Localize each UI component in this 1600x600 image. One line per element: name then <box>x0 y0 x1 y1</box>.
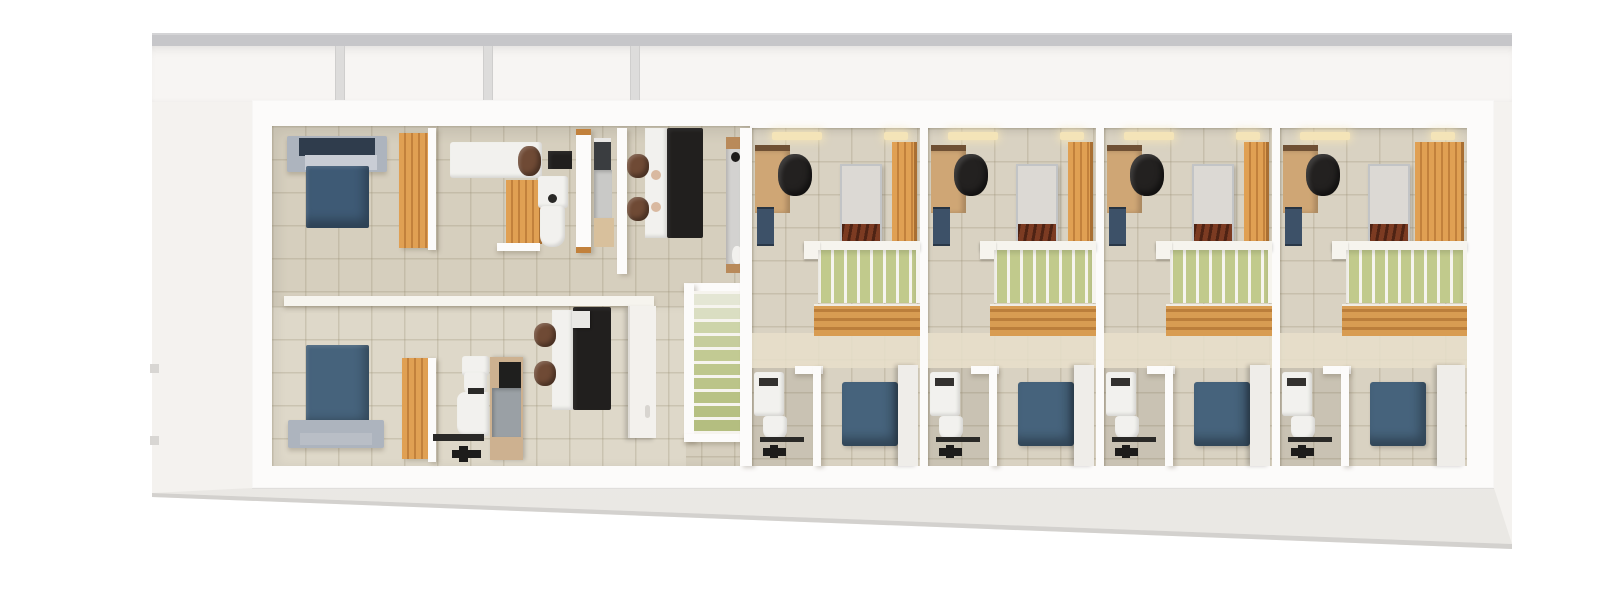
headboard-white <box>1250 365 1270 466</box>
office-white-desk <box>552 310 573 410</box>
faucet <box>548 194 557 203</box>
shower-glass <box>594 142 611 170</box>
guest-unit <box>1104 128 1272 466</box>
headboard-white <box>1437 365 1465 466</box>
partition-wall <box>428 358 436 462</box>
stair-tread <box>694 420 740 431</box>
stair-wall-west <box>684 284 694 442</box>
towel-rail <box>760 437 804 442</box>
wood-slat-stair <box>1342 304 1467 336</box>
wardrobe-north <box>399 133 431 248</box>
wall-tv <box>548 151 572 169</box>
wardrobe <box>1068 142 1093 248</box>
stair-tread <box>694 392 740 403</box>
vanity-chair <box>518 146 541 176</box>
double-bed-blue <box>1018 382 1074 446</box>
double-bed-north <box>306 166 369 228</box>
towel-rail <box>1112 437 1156 442</box>
cream-floor-strip <box>752 333 920 368</box>
plate <box>651 170 661 180</box>
office-chair <box>954 154 988 196</box>
stair-tread <box>694 364 740 375</box>
double-bed-south <box>306 345 369 428</box>
ceiling-light <box>1124 132 1174 140</box>
study-black-sideboard <box>667 128 703 238</box>
guest-units-row <box>752 128 1467 466</box>
loft-void-green <box>994 250 1096 303</box>
bath-mat-nub <box>770 445 778 458</box>
office-chair <box>778 154 812 196</box>
double-bed-blue <box>1370 382 1426 446</box>
wardrobe <box>1244 142 1269 248</box>
bath-mat-nub <box>1122 445 1130 458</box>
wood-slat-stair <box>1166 304 1272 336</box>
laptop <box>572 311 590 328</box>
double-bed-blue <box>1194 382 1250 446</box>
washbasin-south <box>457 392 489 436</box>
ceiling-light <box>1060 132 1084 140</box>
oak-bench <box>594 218 614 247</box>
office-chair-brown <box>534 323 556 347</box>
study-chair <box>627 154 649 178</box>
loft-railing-bar <box>1332 241 1467 250</box>
shower-tray <box>492 388 521 437</box>
wardrobe <box>1415 142 1464 248</box>
bath-mat-nub <box>1298 445 1306 458</box>
window-mullion <box>630 46 640 102</box>
bath-mat-nub <box>459 446 468 462</box>
bath-partition-wall <box>1165 366 1173 466</box>
bed-frame-south <box>288 420 384 448</box>
white-door <box>628 306 656 438</box>
platform-edge-tab <box>150 436 159 445</box>
ceiling-light <box>1300 132 1350 140</box>
plate <box>651 202 661 212</box>
hob-knob <box>731 152 740 162</box>
shower-fixture <box>499 362 521 389</box>
loft-void-green <box>818 250 920 303</box>
partition-stub <box>497 243 540 251</box>
north-window-band <box>152 46 1512 102</box>
washbasin-slot <box>1287 378 1306 386</box>
headboard-white <box>898 365 918 466</box>
office-chair <box>1130 154 1164 196</box>
guest-unit <box>752 128 920 466</box>
headboard-white <box>1074 365 1094 466</box>
double-bed-blue <box>842 382 898 446</box>
wardrobe <box>892 142 917 248</box>
bath-mat-nub <box>946 445 954 458</box>
office-chair <box>1306 154 1340 196</box>
loft-railing-bar <box>980 241 1096 250</box>
ceiling-light <box>1431 132 1455 140</box>
window-mullion <box>483 46 493 102</box>
blue-bench <box>1109 207 1126 246</box>
stair-tread <box>694 294 740 305</box>
towel-rail <box>936 437 980 442</box>
platform-edge-tab <box>150 364 159 373</box>
loft-void-green <box>1346 250 1467 303</box>
oak-cabinet <box>506 180 542 244</box>
guest-unit <box>928 128 1096 466</box>
ceiling-light <box>1236 132 1260 140</box>
toilet-north <box>540 206 565 247</box>
scene-canvas <box>0 0 1600 600</box>
section-wall <box>740 128 752 466</box>
washbasin-slot <box>759 378 778 386</box>
washbasin-unit <box>930 372 960 416</box>
washbasin-unit <box>1106 372 1136 416</box>
bath-mat <box>1115 448 1138 456</box>
ceiling-light <box>772 132 822 140</box>
cream-floor-strip <box>1280 333 1467 368</box>
washbasin-unit <box>754 372 784 416</box>
washbasin-north <box>538 176 568 208</box>
guest-unit <box>1280 128 1467 466</box>
stair-tread <box>694 322 740 333</box>
partition-wall <box>617 128 627 274</box>
stair-tread <box>694 308 740 319</box>
towel-rail <box>1288 437 1332 442</box>
towel-rail <box>433 434 484 441</box>
stair-tread <box>694 406 740 417</box>
bath-mat <box>763 448 786 456</box>
study-white-desk <box>645 128 667 238</box>
wood-slat-stair <box>814 304 920 336</box>
loft-railing-bar <box>1156 241 1272 250</box>
washbasin-unit <box>1282 372 1312 416</box>
bath-partition-wall <box>1341 366 1349 466</box>
partition-wall <box>576 129 591 253</box>
stair-tread <box>694 336 740 347</box>
bath-partition-wall <box>813 366 821 466</box>
bath-partition-wall <box>989 366 997 466</box>
cream-floor-strip <box>928 333 1096 368</box>
shower-tray <box>594 170 612 218</box>
loft-railing-bar <box>804 241 920 250</box>
wardrobe-south <box>402 358 431 459</box>
washbasin-slot <box>935 378 954 386</box>
blue-bench <box>757 207 774 246</box>
blue-bench <box>933 207 950 246</box>
washbasin-slot <box>1111 378 1130 386</box>
blue-bench <box>1285 207 1302 246</box>
stair-tread <box>694 378 740 389</box>
office-chair-brown <box>534 361 556 386</box>
bed-frame-inset <box>300 433 372 445</box>
loft-void-green <box>1170 250 1272 303</box>
bed-frame-inset <box>299 138 375 156</box>
door-handle <box>645 405 650 418</box>
partition-wall <box>428 128 436 250</box>
wood-slat-stair <box>990 304 1096 336</box>
bath-mat <box>1291 448 1314 456</box>
window-mullion <box>335 46 345 102</box>
ceiling-light <box>948 132 998 140</box>
cream-floor-strip <box>1104 333 1272 368</box>
stair-tread <box>694 350 740 361</box>
corridor-wall <box>284 296 654 306</box>
faucet <box>468 388 484 394</box>
bath-mat <box>939 448 962 456</box>
study-chair <box>627 197 649 221</box>
staircase <box>694 291 740 434</box>
ceiling-light <box>884 132 908 140</box>
